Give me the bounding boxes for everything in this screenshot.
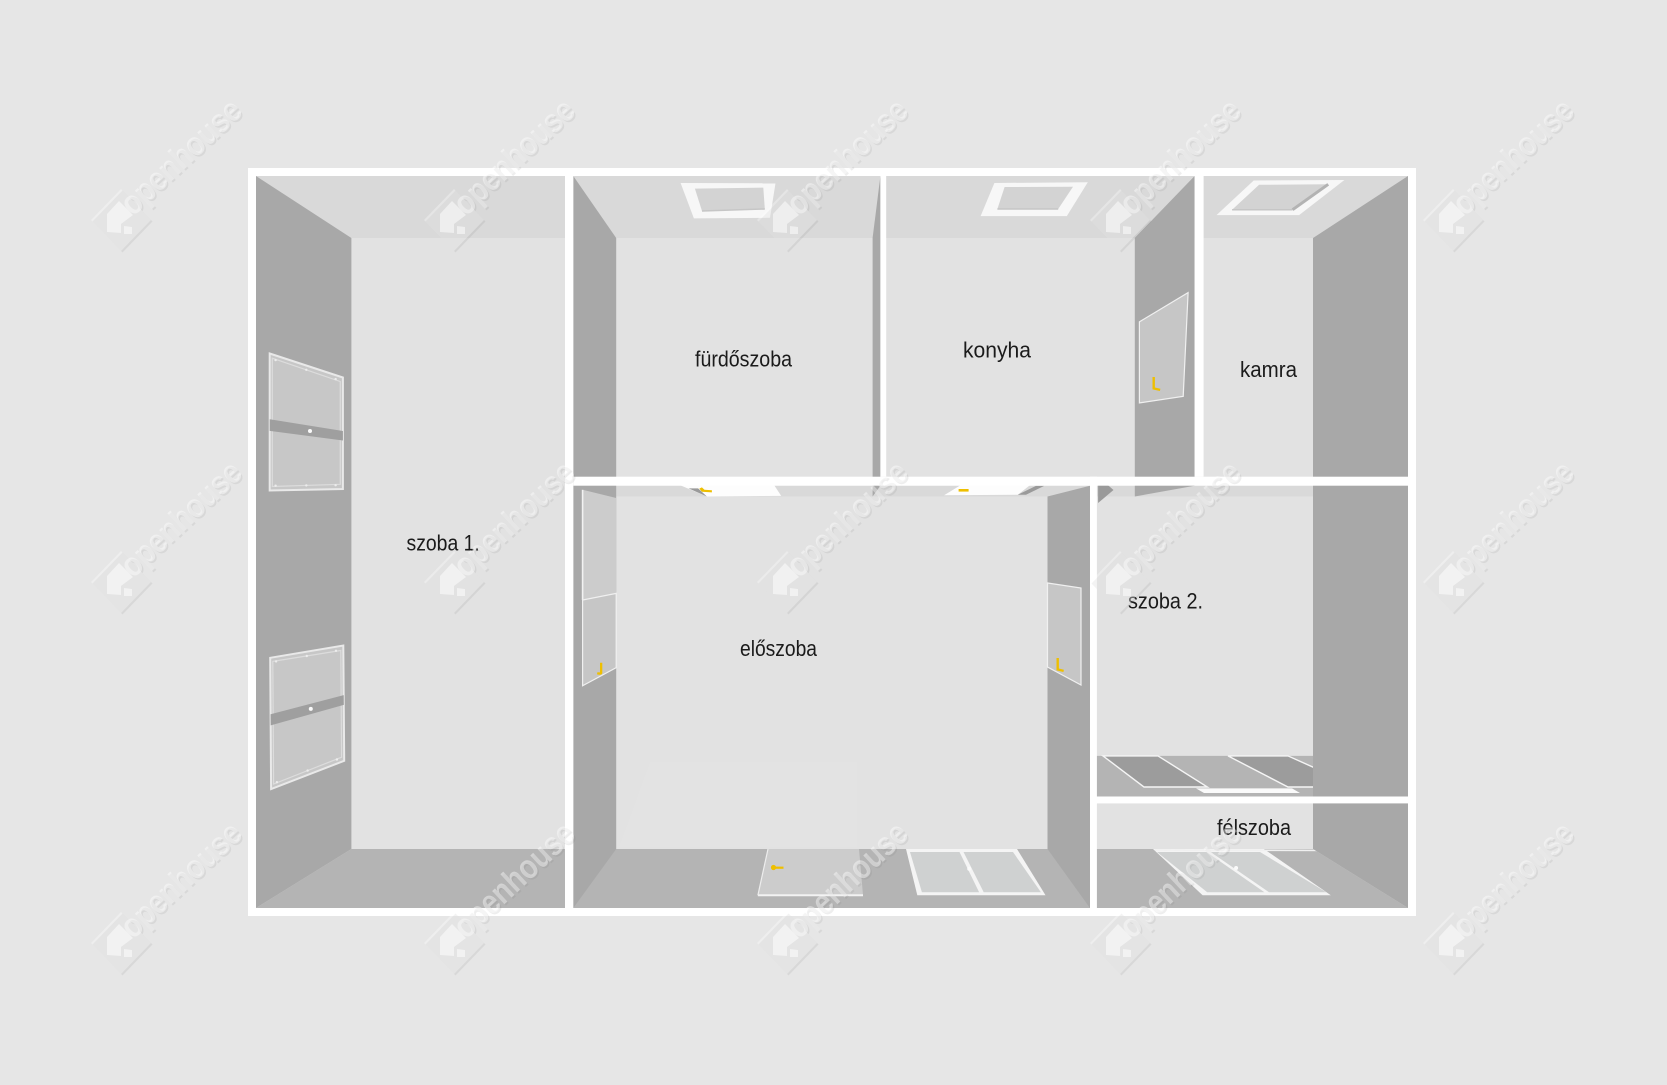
svg-text:konyha: konyha <box>963 338 1031 363</box>
svg-text:kamra: kamra <box>1240 357 1297 382</box>
svg-text:előszoba: előszoba <box>740 636 817 661</box>
svg-text:fürdőszoba: fürdőszoba <box>695 347 792 372</box>
